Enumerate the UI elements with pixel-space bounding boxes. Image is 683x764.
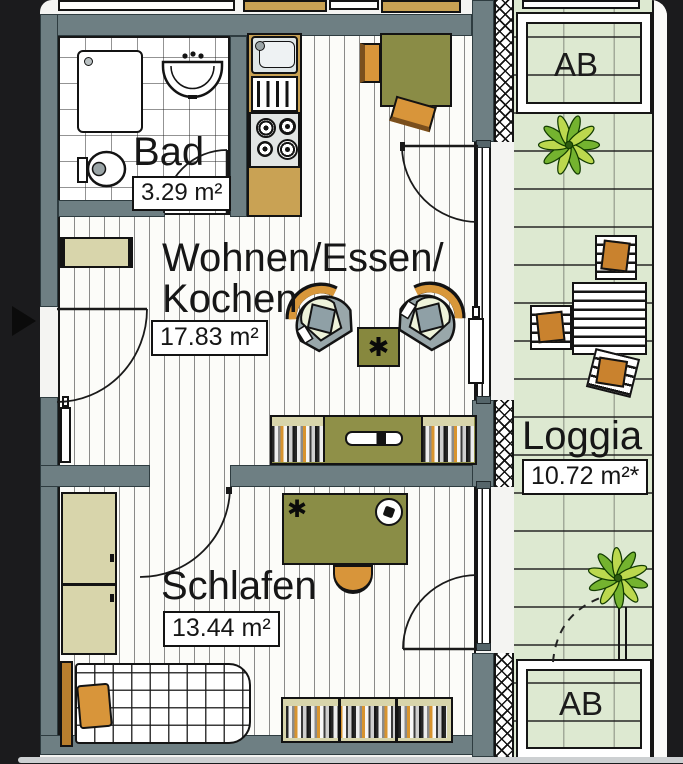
wall-loggia-bottom bbox=[472, 653, 494, 757]
bookshelf-divider bbox=[338, 699, 341, 741]
desk-lamp-base bbox=[383, 506, 396, 519]
cropped-room-fragment bbox=[522, 0, 640, 9]
bookshelf-divider bbox=[395, 699, 398, 741]
dining-chair bbox=[360, 43, 381, 83]
pillow bbox=[76, 683, 113, 730]
bed-headboard bbox=[60, 661, 73, 747]
radiator-valve bbox=[472, 306, 480, 318]
area-badge-bad: 3.29 m² bbox=[132, 176, 231, 211]
room-label-loggia: Loggia bbox=[522, 416, 642, 457]
glass-end-cap bbox=[476, 481, 491, 489]
desk: ✱ bbox=[282, 493, 408, 565]
books-row bbox=[286, 706, 447, 738]
bookshelf bbox=[281, 697, 453, 743]
desk-plant-icon: ✱ bbox=[287, 495, 307, 524]
cropped-room-fragment bbox=[243, 0, 327, 12]
shower-drain-icon bbox=[84, 57, 93, 66]
loggia-chair bbox=[530, 305, 572, 350]
desk-lamp bbox=[375, 498, 403, 526]
glass-end-cap bbox=[476, 396, 491, 404]
radiator bbox=[468, 318, 484, 384]
stove-burner bbox=[257, 141, 273, 157]
bookshelf-section bbox=[272, 417, 325, 462]
wardrobe-divider bbox=[63, 583, 115, 586]
loggia-rail-mark bbox=[618, 607, 627, 660]
room-label-wohnen-line1: Wohnen/Essen/ bbox=[162, 238, 444, 279]
wall-bedroom-right bbox=[230, 465, 494, 487]
radiator-valve bbox=[62, 396, 69, 407]
cropped-room-fragment bbox=[58, 0, 235, 11]
coffee-table: ✱ bbox=[357, 327, 400, 367]
entrance-arrow-icon bbox=[12, 306, 36, 336]
photo-bottom-edge bbox=[18, 757, 683, 763]
area-badge-wohnen: 17.83 m² bbox=[151, 320, 268, 356]
loggia-table bbox=[572, 282, 647, 355]
chair-cushion bbox=[536, 311, 566, 344]
kitchen-sink bbox=[251, 36, 298, 74]
apartment-floorplan: ✱ ✱ bbox=[40, 0, 667, 757]
wall-left-lower bbox=[40, 397, 58, 755]
stove-burner bbox=[279, 118, 296, 135]
loggia-glass-door-bedroom bbox=[476, 489, 491, 645]
kitchen-unit bbox=[247, 33, 302, 217]
insulation-hatch-bottom bbox=[494, 653, 514, 757]
area-badge-schlafen: 13.44 m² bbox=[163, 611, 280, 647]
room-label-ab-top: AB bbox=[554, 46, 598, 84]
decor-star-icon: ✱ bbox=[368, 332, 390, 363]
stove bbox=[249, 112, 300, 168]
area-badge-loggia: 10.72 m²* bbox=[522, 459, 648, 495]
wardrobe-handle bbox=[110, 554, 114, 562]
wall-bedroom-left bbox=[40, 465, 150, 487]
chair-cushion bbox=[600, 239, 630, 272]
stove-burner bbox=[277, 139, 298, 160]
dining-table bbox=[380, 33, 452, 107]
room-label-ab-bottom: AB bbox=[559, 685, 603, 723]
tv-device bbox=[345, 431, 403, 446]
wardrobe-handle bbox=[110, 594, 114, 602]
insulation-hatch-top bbox=[494, 0, 514, 142]
cropped-room-fragment bbox=[381, 0, 461, 13]
room-label-wohnen-line2: Kochen bbox=[162, 279, 298, 320]
glass-end-cap bbox=[476, 140, 491, 148]
chair-cushion bbox=[595, 357, 628, 388]
room-label-bad: Bad bbox=[133, 132, 204, 173]
insulation-hatch-middle bbox=[494, 400, 514, 487]
loggia-chair bbox=[595, 235, 637, 280]
shower bbox=[77, 50, 143, 133]
loggia-outer-wall bbox=[652, 0, 667, 757]
wall-left-upper bbox=[40, 14, 58, 307]
wall-loggia-top bbox=[472, 0, 494, 142]
dish-rack bbox=[251, 76, 298, 112]
stove-burner bbox=[256, 118, 276, 138]
tv-sideboard bbox=[270, 415, 477, 465]
wall-bath-kitchen bbox=[230, 36, 247, 217]
glass-end-cap bbox=[476, 643, 491, 651]
dish-rack-bars bbox=[257, 81, 292, 107]
radiator bbox=[60, 407, 71, 463]
wardrobe bbox=[61, 492, 117, 655]
sideboard bbox=[60, 237, 133, 268]
faucet-icon bbox=[255, 41, 265, 51]
room-label-schlafen: Schlafen bbox=[161, 566, 317, 607]
cropped-room-fragment bbox=[329, 0, 379, 10]
floorplan-photo: ✱ ✱ bbox=[0, 0, 683, 764]
bookshelf-section bbox=[421, 417, 474, 462]
